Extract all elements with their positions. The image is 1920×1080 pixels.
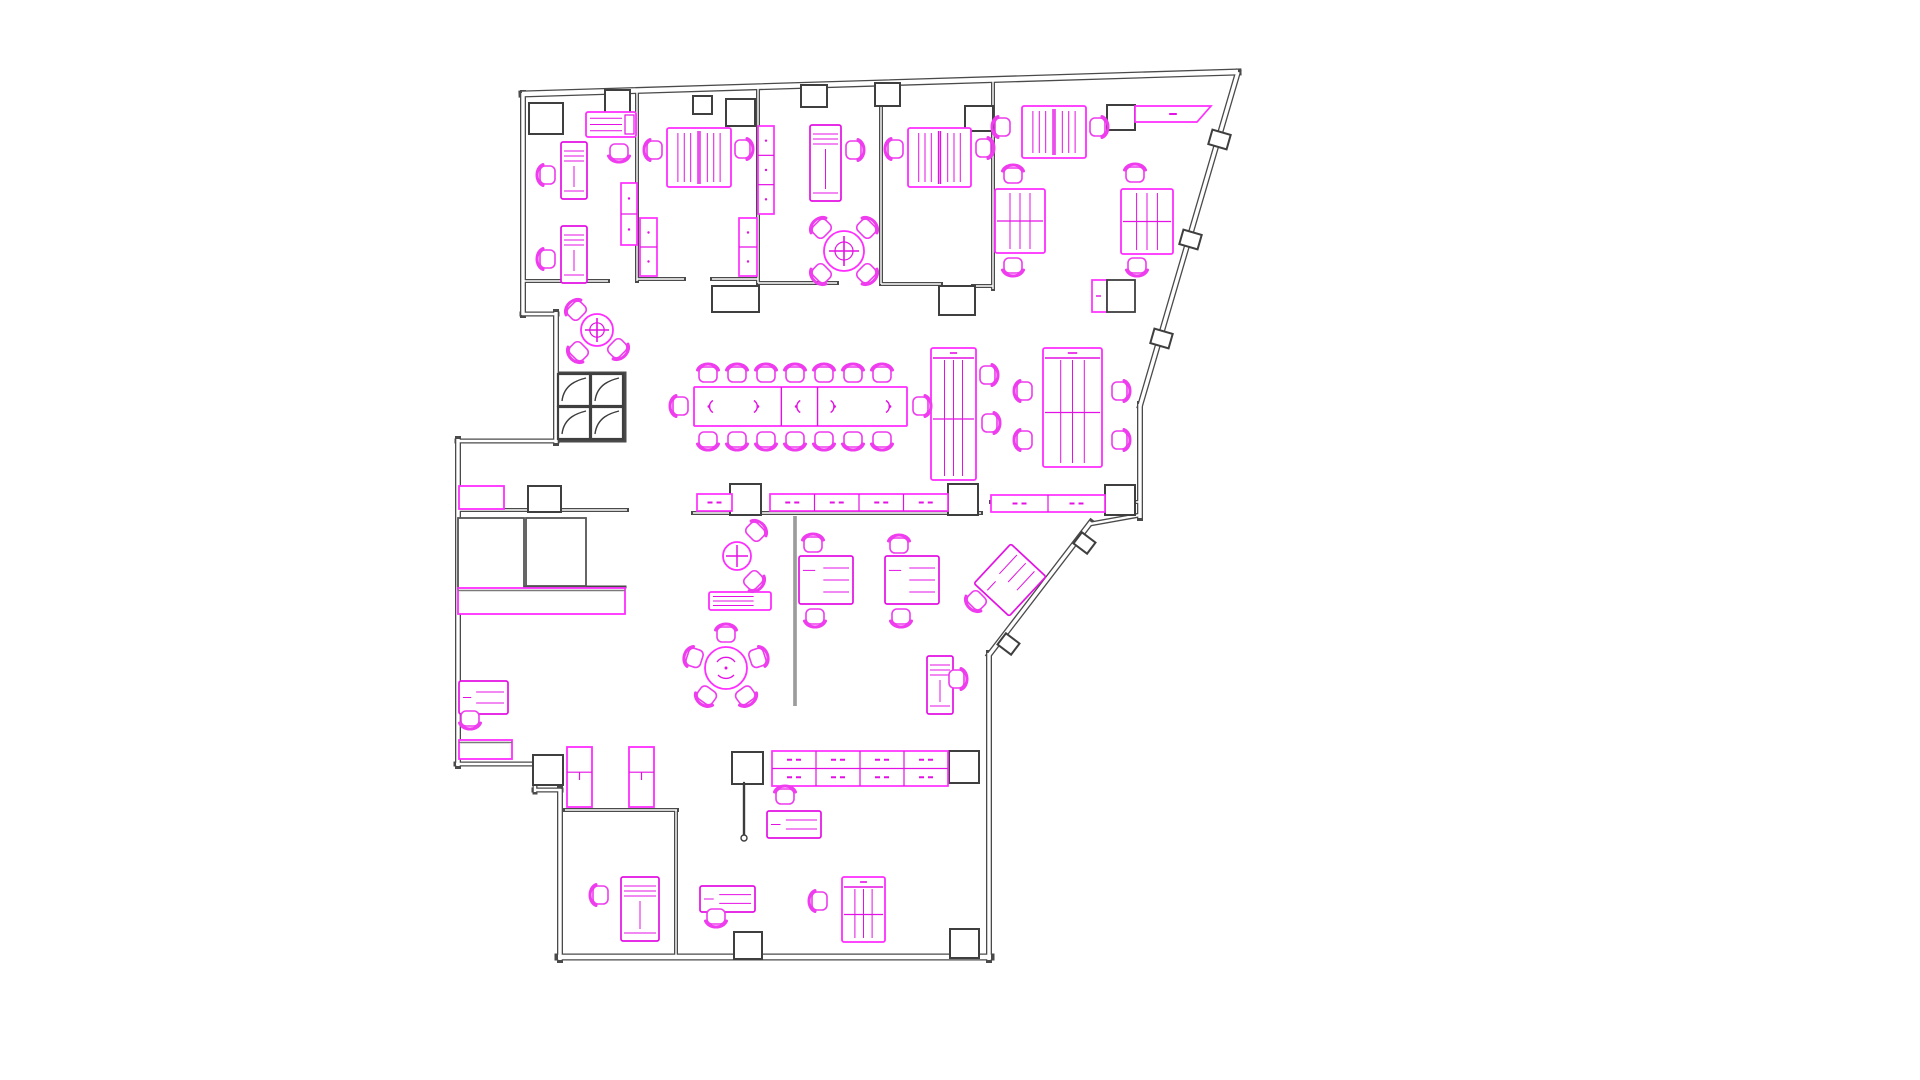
chair — [872, 432, 893, 450]
west-desk — [459, 681, 508, 714]
chair — [706, 909, 727, 927]
chair — [537, 249, 555, 270]
wall-column — [949, 751, 979, 783]
chair — [913, 396, 931, 417]
storage-table-1 — [458, 518, 524, 589]
wall-column — [533, 755, 563, 785]
wardrobe-2 — [629, 747, 654, 807]
open-area-printer-stand — [1092, 280, 1135, 312]
chair — [1014, 430, 1032, 451]
chair — [1003, 258, 1024, 276]
chair — [785, 364, 806, 382]
chair — [644, 140, 662, 161]
chair — [756, 364, 777, 382]
chair — [885, 139, 903, 160]
wall-column — [529, 103, 563, 134]
chair — [976, 138, 994, 159]
wardrobe-1 — [567, 747, 592, 807]
chair — [716, 624, 737, 642]
chair — [756, 432, 777, 450]
chair — [1090, 117, 1108, 138]
office1-cabinet — [621, 183, 637, 245]
spine-credenza-small — [697, 494, 732, 511]
wall-column — [1107, 105, 1135, 130]
south-credenza — [772, 751, 948, 786]
office1-desk-upper — [561, 142, 587, 199]
south-desk-c — [767, 811, 821, 838]
storage-table-2 — [526, 518, 586, 586]
wall-column — [1105, 485, 1135, 515]
storage-counter — [458, 588, 625, 614]
chair — [803, 534, 824, 552]
louver-grid — [558, 374, 623, 439]
chair — [590, 885, 608, 906]
chair — [747, 645, 771, 671]
chair — [843, 432, 864, 450]
wall-column — [605, 90, 630, 113]
chair — [785, 432, 806, 450]
wall-column — [801, 85, 827, 107]
chair — [814, 364, 835, 382]
chair — [1112, 381, 1130, 402]
reception-sideboard — [709, 592, 771, 610]
open-area-top-desk — [1022, 106, 1086, 158]
office3-meeting-table — [824, 231, 864, 271]
chair — [1112, 430, 1130, 451]
wall-column — [875, 83, 900, 106]
spine-worktop — [459, 486, 504, 509]
chair — [735, 139, 753, 160]
south-desk-b — [885, 556, 939, 604]
corner-bench — [842, 877, 885, 942]
open-area-bench-left — [995, 189, 1045, 253]
chair — [872, 364, 893, 382]
chair — [609, 144, 630, 162]
wall-column — [939, 286, 975, 315]
chair — [1003, 165, 1024, 183]
chair — [727, 432, 748, 450]
chair — [1014, 381, 1032, 402]
chair — [1127, 258, 1148, 276]
chair — [843, 364, 864, 382]
wall-column — [528, 486, 561, 512]
conference-table — [694, 387, 907, 426]
open-area-credenza-slant — [1135, 106, 1211, 122]
coat-stand — [741, 783, 747, 841]
louver-cell — [591, 407, 623, 439]
chair — [980, 365, 998, 386]
chair — [805, 609, 826, 627]
floor-plan-page — [0, 0, 1920, 1080]
chair — [891, 609, 912, 627]
wall-column — [712, 286, 759, 312]
chair — [846, 140, 864, 161]
open-area-bench-right — [1121, 189, 1173, 254]
chair — [1125, 164, 1146, 182]
conference-bench — [931, 348, 976, 480]
breakout-round-table — [581, 314, 613, 346]
wall-column — [950, 929, 979, 958]
open-area-bench-south — [1043, 348, 1102, 467]
chair — [698, 432, 719, 450]
chair — [698, 364, 719, 382]
wall-column — [1150, 329, 1172, 349]
office2-cabinet-east — [739, 218, 757, 276]
lounge-round-table — [705, 647, 747, 689]
office2-cabinet-west — [640, 218, 657, 276]
louver-cell — [558, 374, 590, 406]
office1-printer-table — [586, 112, 636, 137]
chair — [537, 165, 555, 186]
chair — [809, 891, 827, 912]
chair — [727, 364, 748, 382]
wall-column — [726, 99, 755, 126]
chair — [743, 517, 771, 545]
wall-column — [1179, 230, 1201, 250]
wall-column — [1073, 532, 1095, 553]
chair — [681, 645, 705, 671]
office1-desk-lower — [561, 226, 587, 283]
office4-double-desk — [908, 128, 971, 187]
chair — [741, 568, 769, 596]
spine-credenza-main — [770, 494, 948, 511]
floor-plan-drawing — [0, 0, 1920, 1080]
chair — [775, 786, 796, 804]
office3-desk — [810, 125, 841, 201]
chair — [814, 432, 835, 450]
wall-column — [734, 932, 762, 959]
chair — [460, 711, 481, 729]
chair — [949, 669, 967, 690]
closet-desk — [621, 877, 659, 941]
louver-cell — [558, 407, 590, 439]
reception-device — [723, 542, 751, 570]
south-desk-a — [799, 556, 853, 604]
west-counter — [459, 740, 512, 759]
wall-column — [732, 752, 763, 784]
office3-cabinet — [758, 126, 774, 214]
louver-cell — [591, 374, 623, 406]
wall-column — [693, 96, 712, 114]
chair — [992, 117, 1010, 138]
wall-column — [730, 484, 761, 515]
chair — [889, 535, 910, 553]
wall-column — [1208, 130, 1230, 150]
spine-credenza-east — [991, 495, 1105, 512]
chair — [982, 413, 1000, 434]
wall-column — [948, 484, 978, 515]
office2-double-desk — [667, 128, 731, 187]
chair — [670, 396, 688, 417]
south-small-desk — [700, 886, 755, 912]
